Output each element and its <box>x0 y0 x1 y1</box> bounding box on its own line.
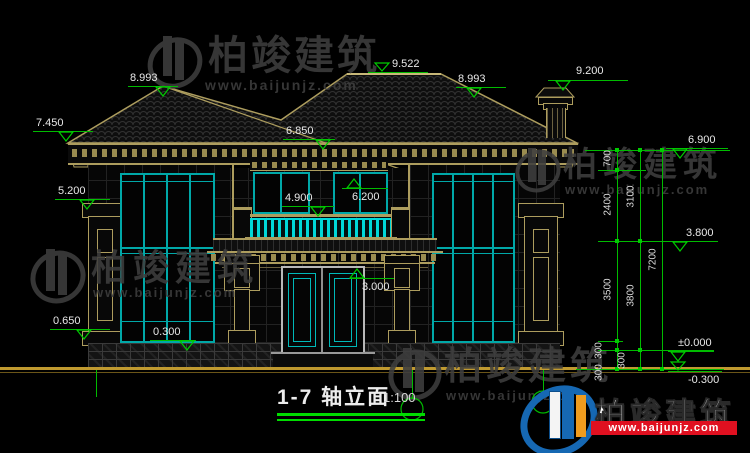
cad-elevation-drawing: 柏竣建筑 www.baijunjz.com 柏竣建筑 www.baijunjz.… <box>0 0 750 453</box>
elevation-marker-triangle <box>311 207 325 216</box>
logo-url-bar: www.baijunjz.com <box>591 421 737 435</box>
logo-building-bar-blue <box>562 387 574 439</box>
elevation-marker-triangle <box>467 88 481 97</box>
drawing-scale: 1:100 <box>383 390 416 405</box>
elevation-marker-triangle <box>671 362 685 370</box>
elevation-marker-triangle <box>673 149 687 158</box>
elevation-marker-triangle <box>316 140 330 149</box>
elevation-marker-triangle <box>350 269 364 278</box>
elevation-marker-triangle <box>180 341 194 350</box>
elevation-marker-triangle <box>156 87 170 96</box>
logo-building-bar-orange <box>576 395 586 437</box>
elevation-marker-triangle <box>673 242 687 251</box>
elevation-marker-triangle <box>80 200 94 209</box>
elevation-marker-triangle <box>556 81 570 90</box>
elevation-marker-triangle <box>77 330 91 339</box>
company-logo: 柏竣建筑 www.baijunjz.com <box>515 383 745 449</box>
logo-building-bar-white <box>549 391 561 439</box>
elevation-marker-triangle <box>375 63 389 71</box>
elevation-marker-triangle <box>347 179 361 188</box>
drawing-title: 1-7 轴立面 <box>277 381 390 411</box>
title-underline-2 <box>277 419 425 421</box>
elevation-marker-triangle <box>59 132 73 141</box>
elevation-marker-triangle <box>671 352 685 361</box>
title-underline-1 <box>277 413 425 416</box>
